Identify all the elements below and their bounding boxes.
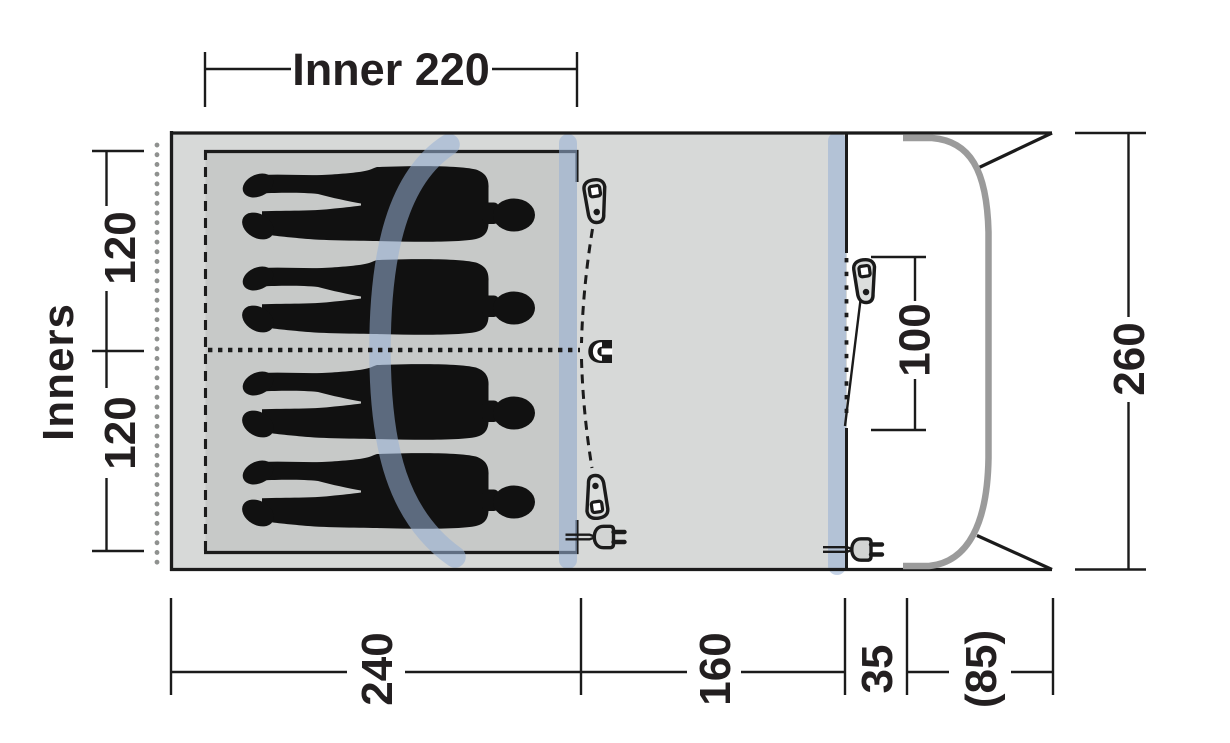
svg-text:100: 100	[891, 303, 940, 376]
svg-text:240: 240	[353, 632, 402, 705]
svg-text:120: 120	[96, 211, 145, 284]
svg-text:160: 160	[691, 632, 740, 705]
svg-text:(85): (85)	[957, 630, 1006, 708]
svg-text:120: 120	[96, 396, 145, 469]
svg-text:260: 260	[1105, 322, 1154, 395]
svg-text:Inners: Inners	[34, 303, 83, 441]
svg-text:35: 35	[853, 645, 902, 694]
svg-text:Inner 220: Inner 220	[292, 44, 490, 95]
